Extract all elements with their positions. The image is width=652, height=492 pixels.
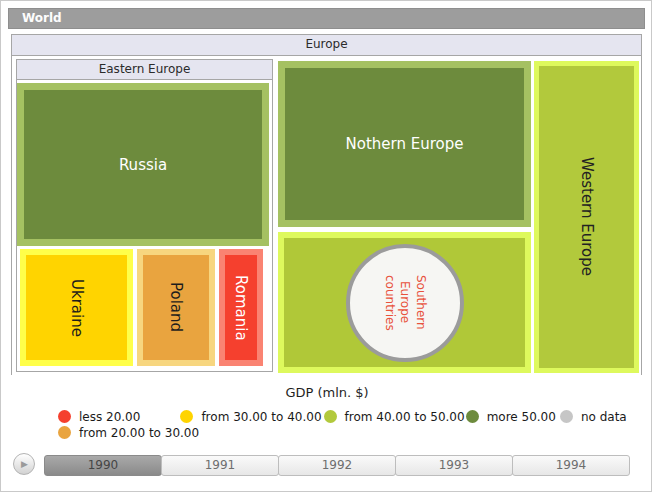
legend-item-label: from 20.00 to 30.00 xyxy=(79,426,199,440)
legend-swatch-yellowgreen-icon xyxy=(324,410,337,423)
romania-label: Romania xyxy=(232,275,250,341)
eastern-europe-header-label: Eastern Europe xyxy=(99,62,191,76)
legend-swatch-gray-icon xyxy=(560,410,573,423)
legend-item-label: from 30.00 to 40.00 xyxy=(201,410,321,424)
eastern-europe-header[interactable]: Eastern Europe xyxy=(17,60,272,80)
europe-panel: Europe Eastern Europe Russia Ukraine Pol… xyxy=(11,34,642,375)
russia-label: Russia xyxy=(119,156,167,174)
breadcrumb-world-button[interactable]: World xyxy=(8,8,645,29)
legend-swatch-yellow-icon xyxy=(180,410,193,423)
legend-swatch-red-icon xyxy=(58,410,71,423)
legend-swatch-orange-icon xyxy=(58,426,71,439)
timeline: ▶ 1990 1991 1992 1993 1994 xyxy=(1,448,652,482)
legend-item-30-to-40[interactable]: from 30.00 to 40.00 xyxy=(180,410,321,424)
play-button[interactable]: ▶ xyxy=(13,453,35,475)
treemap-node-poland[interactable]: Poland xyxy=(137,249,215,366)
legend-item-more-50[interactable]: more 50.00 xyxy=(466,410,556,424)
treemap-node-southern-europe[interactable]: Southern Europe countries xyxy=(278,232,531,373)
southern-europe-drilldown-circle[interactable]: Southern Europe countries xyxy=(346,244,464,362)
year-button-1993[interactable]: 1993 xyxy=(395,455,513,476)
legend: GDP (mln. $) less 20.00 from 30.00 to 40… xyxy=(1,385,652,440)
year-button-1994[interactable]: 1994 xyxy=(512,455,630,476)
northern-europe-label: Nothern Europe xyxy=(346,135,464,153)
breadcrumb-world-label: World xyxy=(22,11,62,25)
year-button-1990[interactable]: 1990 xyxy=(44,455,162,476)
legend-item-label: no data xyxy=(581,410,627,424)
europe-header[interactable]: Europe xyxy=(12,35,641,56)
legend-item-20-to-30[interactable]: from 20.00 to 30.00 xyxy=(58,426,199,440)
legend-row-1: less 20.00 from 30.00 to 40.00 from 40.0… xyxy=(58,409,652,424)
poland-label: Poland xyxy=(167,282,185,332)
year-button-1992[interactable]: 1992 xyxy=(278,455,396,476)
eastern-europe-group: Eastern Europe Russia Ukraine Poland Rom… xyxy=(16,59,273,372)
legend-item-40-to-50[interactable]: from 40.00 to 50.00 xyxy=(324,410,465,424)
legend-swatch-darkgreen-icon xyxy=(466,410,479,423)
legend-item-less-20[interactable]: less 20.00 xyxy=(58,410,140,424)
treemap-app: World Europe Eastern Europe Russia Ukrai… xyxy=(0,0,652,492)
treemap-node-russia[interactable]: Russia xyxy=(17,83,269,246)
europe-body: Eastern Europe Russia Ukraine Poland Rom… xyxy=(12,56,641,375)
play-icon: ▶ xyxy=(21,459,28,469)
legend-title: GDP (mln. $) xyxy=(1,385,652,401)
legend-item-label: more 50.00 xyxy=(487,410,556,424)
treemap-node-romania[interactable]: Romania xyxy=(219,249,263,366)
legend-item-no-data[interactable]: no data xyxy=(560,410,627,424)
legend-item-label: from 40.00 to 50.00 xyxy=(345,410,465,424)
treemap-node-ukraine[interactable]: Ukraine xyxy=(20,249,133,366)
ukraine-label: Ukraine xyxy=(68,279,86,337)
southern-europe-label: Southern Europe countries xyxy=(381,263,428,343)
legend-item-label: less 20.00 xyxy=(79,410,140,424)
year-button-1991[interactable]: 1991 xyxy=(161,455,279,476)
europe-header-label: Europe xyxy=(305,37,347,51)
treemap-node-northern-europe[interactable]: Nothern Europe xyxy=(278,61,531,227)
legend-row-2: from 20.00 to 30.00 xyxy=(58,425,652,440)
timeline-years: 1990 1991 1992 1993 1994 xyxy=(44,455,630,476)
treemap-node-western-europe[interactable]: Western Europe xyxy=(534,61,639,373)
western-europe-label: Western Europe xyxy=(578,157,596,276)
eastern-europe-body: Russia Ukraine Poland Romania xyxy=(17,80,272,372)
